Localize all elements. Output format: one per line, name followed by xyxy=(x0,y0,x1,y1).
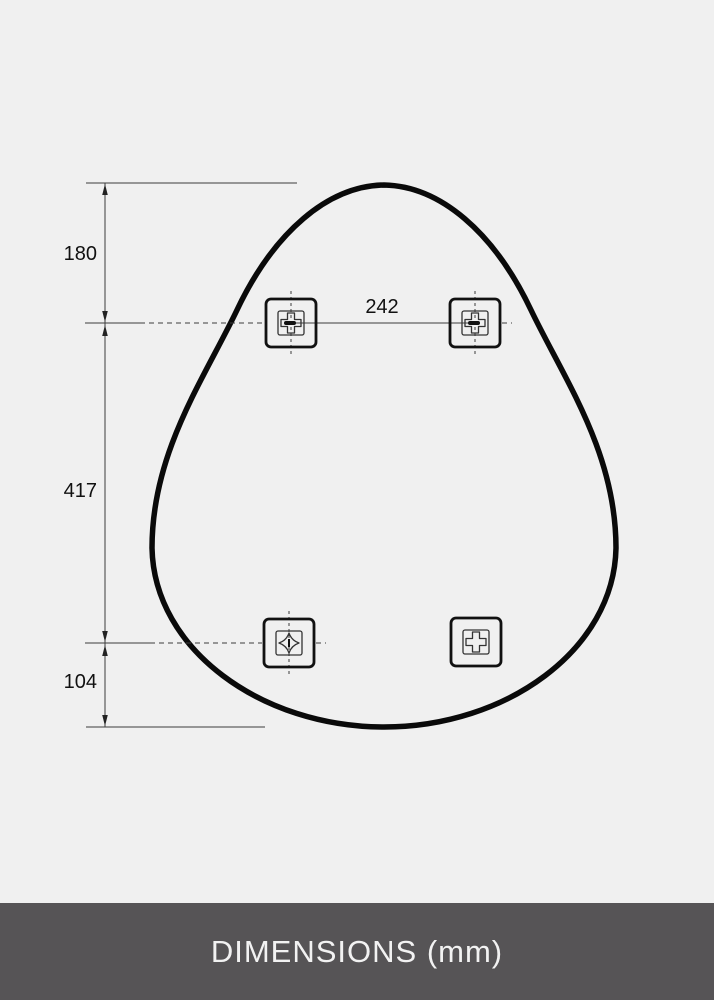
dim-label-bottom-offset: 104 xyxy=(64,671,97,693)
dim-label-middle-span: 417 xyxy=(64,480,97,502)
dim-label-top-offset: 180 xyxy=(64,243,97,265)
keyhole-plus-icon xyxy=(466,632,486,652)
mounting-bracket-bottom-left-icon xyxy=(264,611,314,675)
keyhole-slot xyxy=(468,321,480,325)
arrow-up-mid2 xyxy=(102,645,108,656)
arrow-down-mid1 xyxy=(102,311,108,322)
dim-label-bracket-spacing: 242 xyxy=(365,296,398,318)
bracket-outer-square xyxy=(451,618,501,666)
arrow-up-top xyxy=(102,184,108,195)
mirror-dimension-diagram: 180 417 104 242 xyxy=(0,0,714,903)
footer-label: DIMENSIONS (mm) xyxy=(211,934,503,970)
bracket-inner-square xyxy=(463,630,489,654)
keyhole-slot xyxy=(284,321,296,325)
footer-bar: DIMENSIONS (mm) xyxy=(0,903,714,1000)
mirror-outline xyxy=(152,185,616,727)
arrow-down-mid2 xyxy=(102,631,108,642)
arrow-up-mid1 xyxy=(102,325,108,336)
dimension-diagram-page: 180 417 104 242 xyxy=(0,0,714,1000)
mounting-bracket-bottom-right-icon xyxy=(451,618,501,666)
arrow-down-bottom xyxy=(102,715,108,726)
